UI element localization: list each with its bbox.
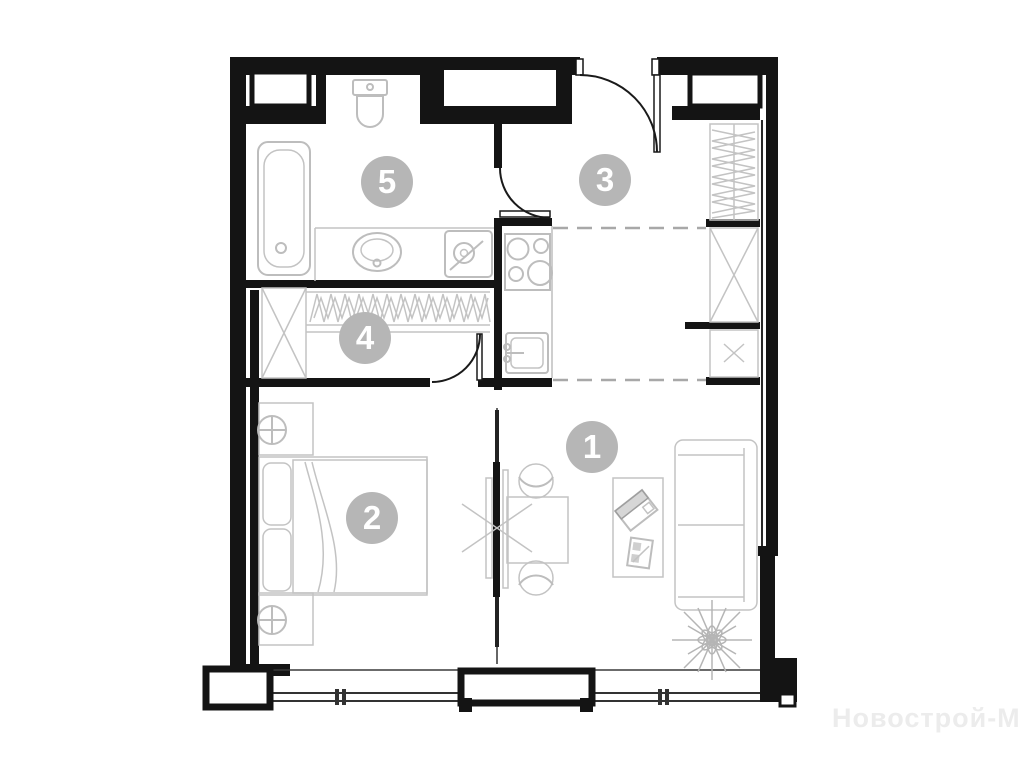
exterior-walls: [230, 57, 778, 677]
closet-door: [432, 334, 482, 382]
watermark: Новострой-М: [832, 703, 1022, 734]
room-badge-living-room: 1: [566, 421, 618, 473]
bathtub: [258, 142, 310, 275]
hallway-wardrobe-hanging: [710, 124, 758, 220]
window-wall: [206, 658, 797, 712]
bathroom-door: [500, 168, 550, 218]
nightstand: [258, 403, 313, 455]
laptop: [615, 490, 657, 531]
window: [594, 689, 760, 705]
pillow: [263, 463, 291, 591]
plant: [672, 600, 752, 680]
closet-hanging-rail: [306, 292, 490, 332]
closet-shelf-unit: [262, 288, 306, 378]
table-lamp: [258, 606, 286, 634]
column: [459, 671, 593, 712]
entrance-door: [576, 59, 660, 152]
dining-table: [507, 497, 568, 563]
kitchen-zone-boundary: [553, 228, 706, 380]
kitchen-stove: [505, 226, 552, 378]
hallway-wardrobe-shelves: [710, 228, 758, 377]
floor-plan-drawing: [0, 0, 1024, 768]
coffee-table: [613, 478, 663, 577]
room-badge-bedroom: 2: [346, 492, 398, 544]
sliding-partition: [462, 408, 532, 664]
chair: [519, 561, 553, 595]
double-bed: [259, 457, 427, 595]
window: [272, 689, 459, 705]
kitchen-sink: [504, 333, 548, 373]
sofa: [675, 440, 757, 610]
room-badge-closet: 4: [339, 312, 391, 364]
chair: [519, 464, 553, 498]
column: [206, 669, 270, 707]
interior-walls: [246, 124, 760, 390]
toilet: [353, 80, 387, 127]
room-badge-hallway: 3: [579, 154, 631, 206]
floor-plan-canvas: 1 2 3 4 5 Новострой-М: [0, 0, 1024, 768]
table-lamp: [258, 416, 286, 444]
tablet: [627, 538, 653, 569]
washing-machine: [445, 231, 492, 277]
room-badge-bathroom: 5: [361, 156, 413, 208]
column: [760, 658, 797, 706]
nightstand: [258, 593, 313, 645]
